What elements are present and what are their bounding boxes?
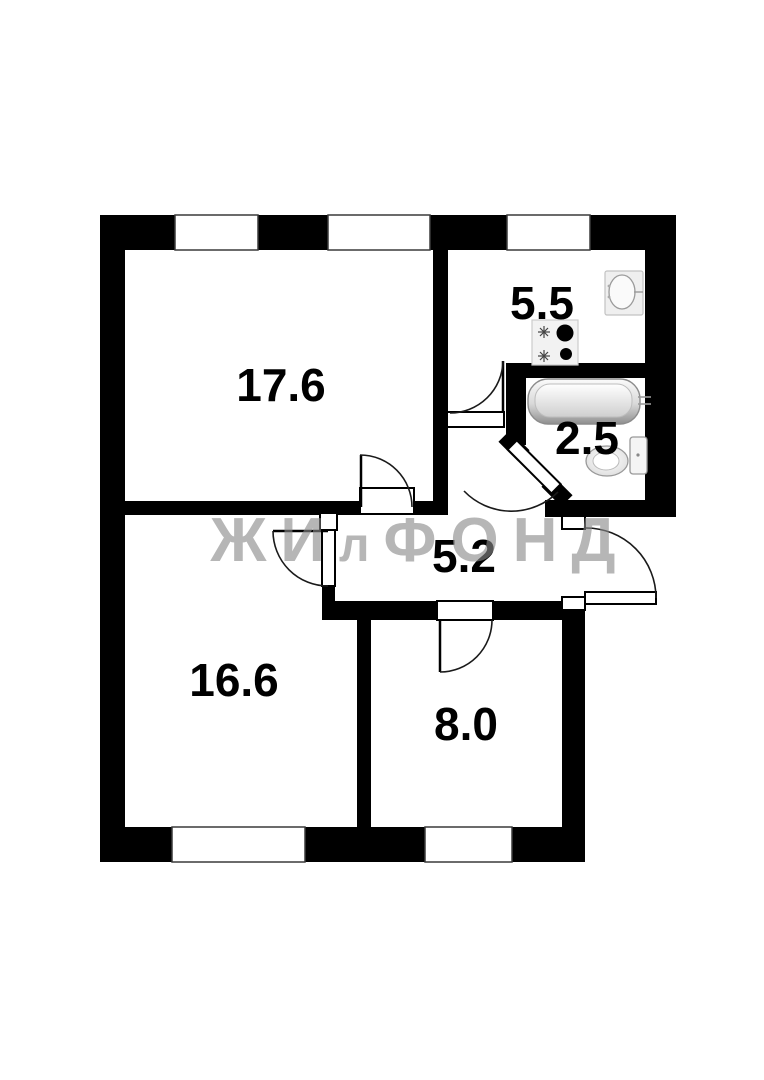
wall-left [100,215,125,862]
label-bedroom-area: 16.6 [189,654,279,706]
window-bedroom [172,827,305,862]
door-arc-kitchen [450,361,503,413]
label-bathroom-area: 2.5 [555,412,619,464]
agency-watermark: ЖИлФОНД [209,506,629,575]
window-living-room-1 [175,215,258,250]
window-kitchen [507,215,590,250]
window-living-room-2 [328,215,430,250]
label-living-room-area: 17.6 [236,359,326,411]
door-arc-small-room [440,620,492,672]
door-leaf-bathroom [508,440,561,493]
kitchen-sink-icon [605,271,643,315]
door-kitchen [447,361,504,427]
label-kitchen-area: 5.5 [510,277,574,329]
window-small-room [425,827,512,862]
floor-plan: 17.6 5.5 2.5 5.2 16.6 8.0 ЖИлФОНД [0,0,764,1080]
door-small-room [437,601,493,672]
watermark-part-1: ЖИ [209,506,339,575]
wall-room-divider [357,601,371,827]
watermark-part-3: ФОНД [384,506,630,575]
door-leaf-entrance [585,592,656,604]
door-bathroom [464,440,561,511]
floor-plan-page: 17.6 5.5 2.5 5.2 16.6 8.0 ЖИлФОНД [0,0,764,1080]
wall-kitchen-west [433,250,448,501]
watermark-part-2: л [339,519,384,572]
label-small-room-area: 8.0 [434,698,498,750]
